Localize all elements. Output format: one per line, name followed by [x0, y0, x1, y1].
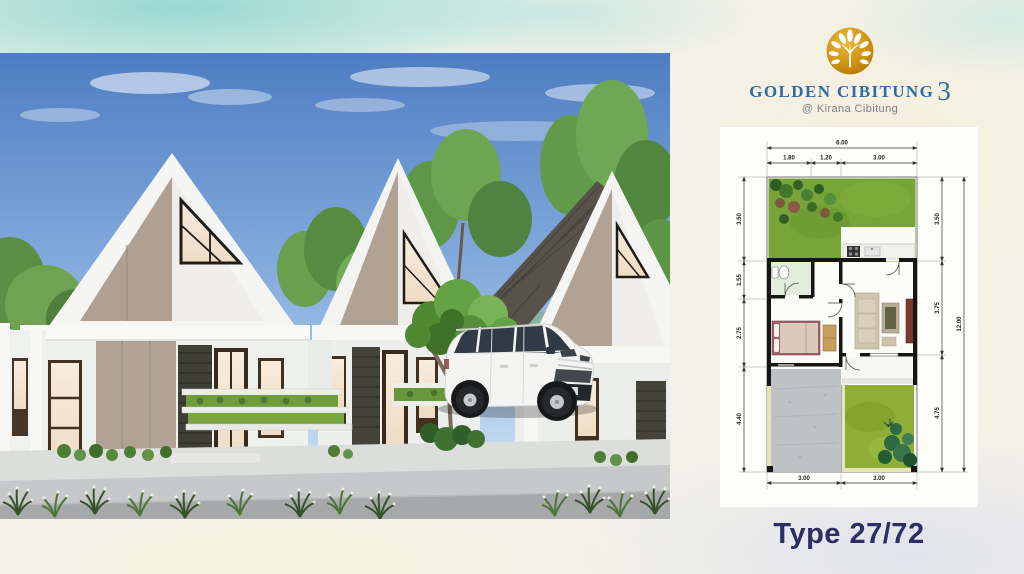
floor-plan-svg: 6.00 1.80 1.20 3.00 3.50 1.55 2.75 4.40 …	[720, 127, 978, 507]
sofa	[855, 293, 879, 349]
brand-subtitle: @ Kirana Cibitung	[705, 103, 995, 115]
dim-label-right-3: 4.75	[935, 407, 941, 419]
dim-label-left-4: 4.40	[737, 413, 743, 425]
planter-left	[182, 389, 352, 430]
kitchen	[841, 227, 915, 261]
floor-plan-card: 6.00 1.80 1.20 3.00 3.50 1.55 2.75 4.40 …	[720, 127, 978, 507]
bed	[772, 321, 820, 355]
garden-bottom	[842, 385, 917, 472]
terrace	[842, 357, 914, 383]
dim-label-top-3: 3.00	[873, 156, 885, 162]
dim-label-top-1: 1.80	[783, 156, 795, 162]
bathroom	[771, 262, 811, 295]
dim-label-right-2: 3.75	[935, 302, 941, 314]
carport	[767, 369, 841, 472]
tv-console	[906, 299, 913, 343]
dim-label-bottom-2: 3.00	[873, 476, 885, 482]
dim-label-left-2: 1.55	[737, 274, 743, 286]
brand-title-number: 3	[937, 76, 951, 106]
window-mark	[870, 354, 898, 357]
dim-label-right-1: 3.50	[935, 213, 941, 225]
brand-title-text: GOLDEN CIBITUNG	[749, 82, 934, 101]
house-scene-svg	[0, 53, 670, 519]
type-label: Type 27/72	[720, 518, 978, 551]
brand-block: GOLDEN CIBITUNG3 @ Kirana Cibitung	[705, 24, 995, 115]
dim-label-top-2: 1.20	[820, 156, 832, 162]
dim-label-top-total: 6.00	[836, 141, 848, 147]
house-render-photo	[0, 53, 670, 519]
dim-label-left-3: 2.75	[737, 327, 743, 339]
dim-label-right-total: 12.00	[957, 316, 963, 332]
brand-title: GOLDEN CIBITUNG3	[705, 82, 995, 101]
logo-tree-icon	[823, 24, 877, 78]
dim-label-bottom-1: 3.00	[798, 476, 810, 482]
dim-label-left-1: 3.50	[737, 213, 743, 225]
left-neighbor-wall	[0, 323, 46, 468]
brochure-page: GOLDEN CIBITUNG3 @ Kirana Cibitung	[0, 0, 1024, 574]
